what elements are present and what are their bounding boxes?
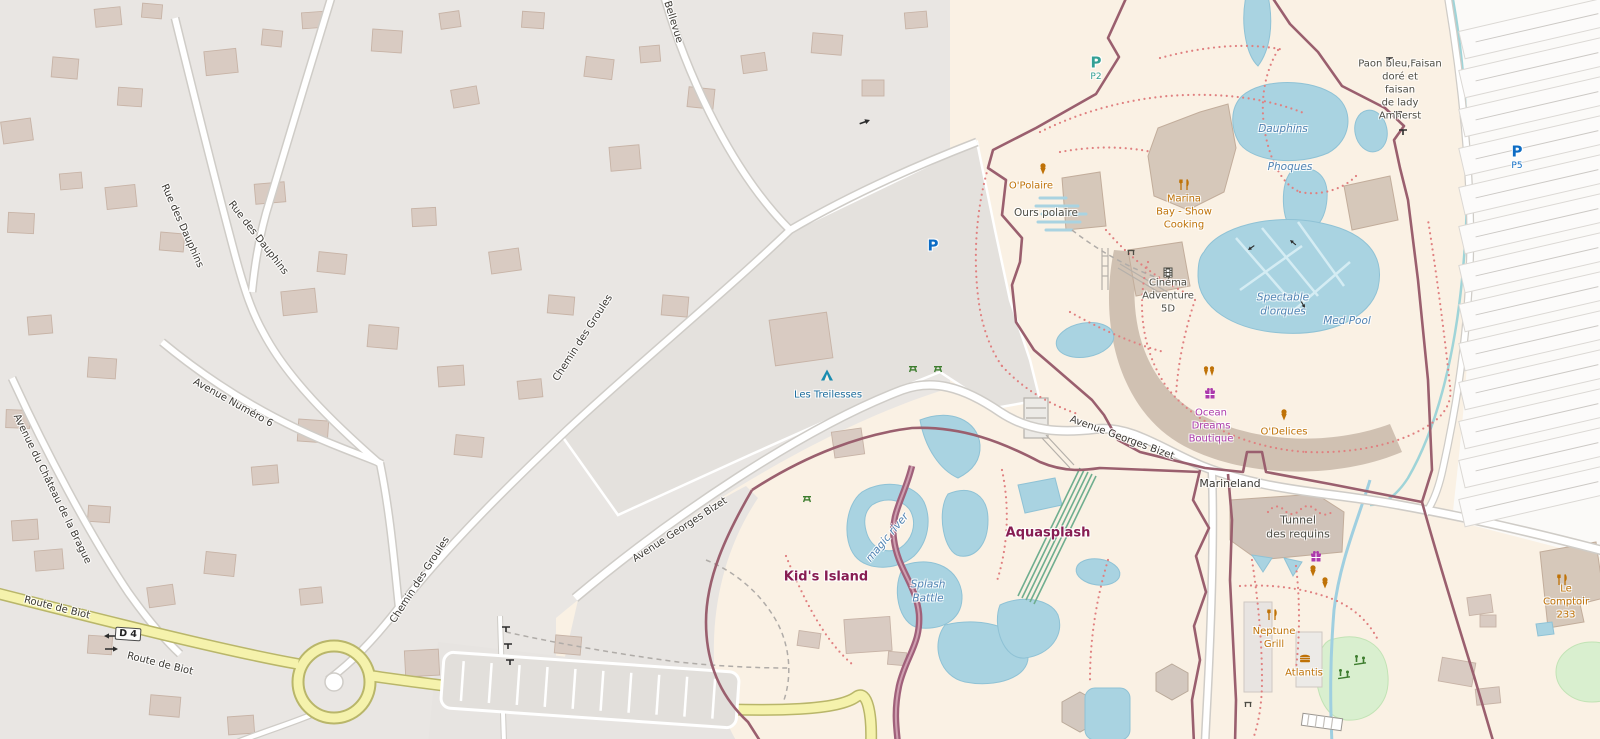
northeast-building bbox=[1344, 176, 1398, 230]
map-canvas[interactable] bbox=[0, 0, 1600, 739]
shark-tunnel-building bbox=[1230, 494, 1344, 560]
map-viewport[interactable]: Bellevue Rue des Dauphins Rue des Dauphi… bbox=[0, 0, 1600, 739]
pool-comptoir bbox=[1536, 622, 1554, 636]
pool-orques bbox=[1198, 220, 1380, 334]
road-ref-badge-d4: D 4 bbox=[115, 627, 142, 642]
pool-dauphins bbox=[1233, 83, 1348, 161]
neptune-building bbox=[1244, 602, 1272, 692]
lawn-atlantis bbox=[1316, 637, 1388, 720]
pool-kids-mid bbox=[942, 490, 988, 556]
atlantis-building bbox=[1296, 632, 1322, 687]
pool-bottom bbox=[1085, 688, 1130, 739]
